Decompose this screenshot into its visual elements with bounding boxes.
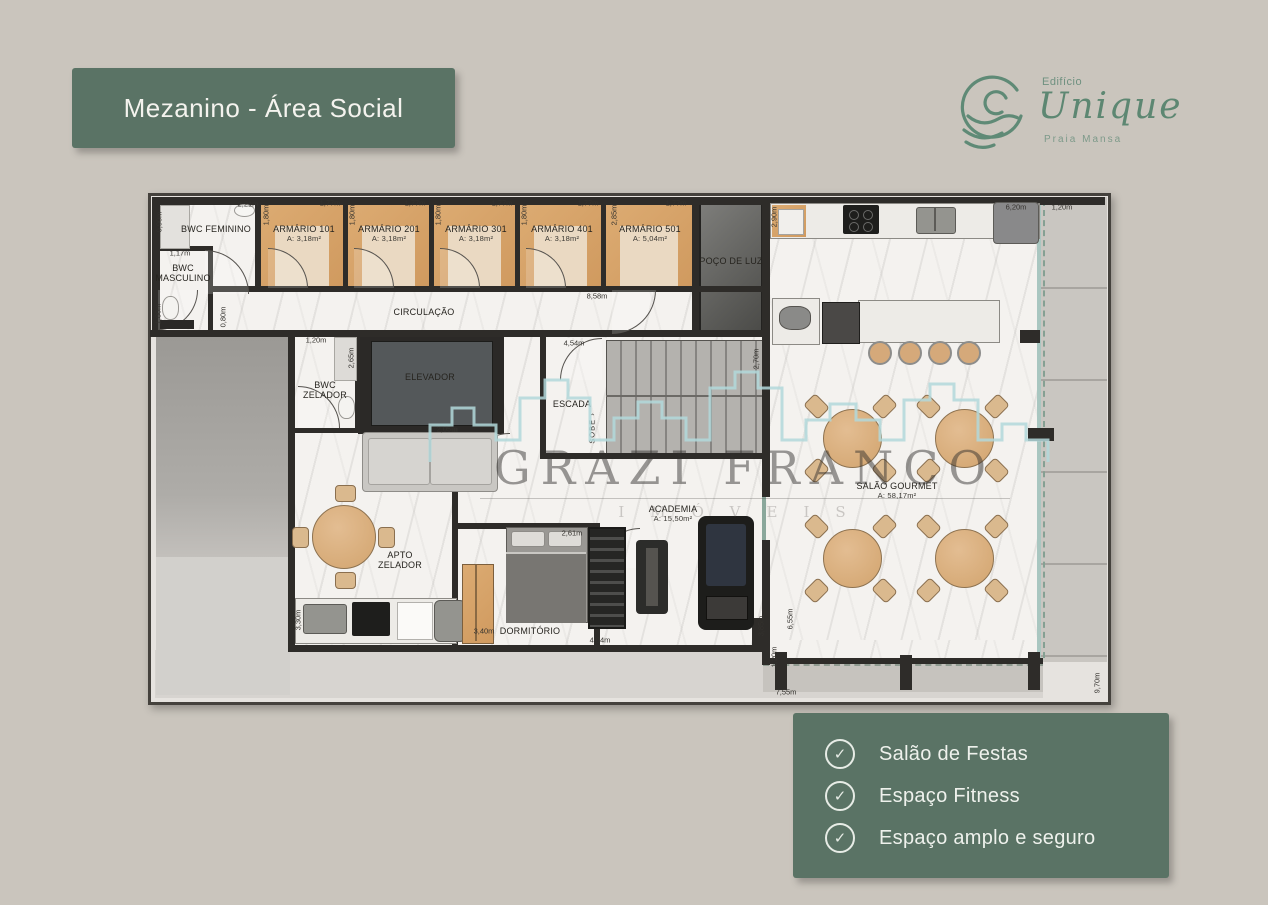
bar-stool	[898, 341, 922, 365]
wall-glass-segment	[762, 497, 766, 540]
feature-item: ✓ Salão de Festas	[793, 737, 1169, 771]
dimension-label: 1,17m	[170, 249, 191, 258]
dimension-label: 1,80m	[154, 304, 163, 325]
dimension-label: 1,77m	[666, 199, 687, 208]
room-label: APTO ZELADOR	[367, 550, 433, 570]
sink-divider	[934, 208, 936, 231]
dark-cabinet	[822, 302, 860, 344]
bar-stool	[868, 341, 892, 365]
gourmet-table	[823, 529, 882, 588]
wall	[540, 333, 546, 459]
sobe-text: SOBE	[588, 419, 597, 444]
dimension-label: 1,80m	[520, 205, 529, 226]
dimension-label: 2,70m	[752, 349, 761, 370]
stairs-sobe-label: SOBE ›	[588, 412, 597, 443]
wall	[288, 330, 295, 652]
dimension-label: 1,77m	[405, 199, 426, 208]
dimension-label: 8,58m	[587, 292, 608, 301]
dimension-label: 1,80m	[262, 205, 271, 226]
dimension-label: 7,55m	[776, 688, 797, 697]
bed-blanket	[506, 552, 586, 623]
room-label: BWC MASCULINO	[154, 263, 212, 283]
dimension-label: 2,65m	[347, 348, 356, 369]
toilet-masculino	[162, 296, 179, 320]
feature-item: ✓ Espaço amplo e seguro	[793, 821, 1169, 855]
wall	[288, 645, 765, 652]
room-label: ARMÁRIO 401A: 3,18m²	[531, 224, 593, 244]
room-label: POÇO DE LUZ	[699, 256, 762, 266]
gym-weight-rack	[588, 527, 626, 629]
room-label: DORMITÓRIO	[500, 626, 561, 636]
feature-label: Espaço Fitness	[879, 785, 1020, 808]
page: { "page": {"background": "#cac5bd", "acc…	[0, 0, 1268, 905]
bar-stool	[928, 341, 952, 365]
dimension-label: 2,85m	[610, 205, 619, 226]
chair	[335, 572, 356, 589]
room-label: SALÃO GOURMETA: 58,17m²	[856, 481, 937, 501]
room-label: ARMÁRIO 501A: 5,04m²	[619, 224, 681, 244]
wall	[150, 330, 295, 337]
dimension-label: 3,30m	[294, 610, 303, 631]
dimension-label: 1,80m	[434, 205, 443, 226]
wall-stub	[1020, 330, 1040, 343]
dimension-label: 0,90m	[155, 212, 164, 233]
stairs	[606, 340, 765, 455]
dimension-label: 0,80m	[219, 307, 228, 328]
room-label: ESCADA	[553, 399, 591, 409]
wall-stub	[900, 655, 912, 690]
dimension-label: 1,20m	[306, 336, 327, 345]
kitchen-double-sink	[916, 207, 956, 234]
burner	[849, 210, 859, 220]
bar-stool	[957, 341, 981, 365]
elevator-cab	[371, 341, 493, 426]
bench-masculino	[160, 320, 194, 329]
room-label: ARMÁRIO 201A: 3,18m²	[358, 224, 420, 244]
room-label: ELEVADOR	[405, 372, 455, 382]
sofa-cushion	[368, 438, 430, 485]
dimension-label: 1,80m	[348, 205, 357, 226]
wall	[762, 197, 770, 497]
kitchenette-stove	[352, 602, 390, 636]
gym-machine-bench	[646, 548, 658, 606]
treadmill-console	[706, 596, 748, 620]
gourmet-table	[935, 529, 994, 588]
kitchen-appliance-white	[778, 209, 804, 235]
check-circle-icon: ✓	[825, 739, 855, 769]
check-circle-icon: ✓	[825, 823, 855, 853]
burner	[849, 222, 859, 232]
dimension-label: 4,54m	[564, 339, 585, 348]
washbasin	[779, 306, 811, 330]
room-label: BWC ZELADOR	[297, 380, 353, 400]
pillow	[511, 531, 545, 547]
kitchenette-sink	[303, 604, 347, 634]
void-lower-roof	[156, 337, 290, 562]
wall	[540, 453, 768, 459]
dimension-label: 2,61m	[562, 529, 583, 538]
wall	[601, 197, 606, 292]
feature-label: Salão de Festas	[879, 743, 1028, 766]
chair	[378, 527, 395, 548]
room-label: CIRCULAÇÃO	[393, 307, 454, 317]
wall	[293, 428, 360, 433]
room-label: ACADEMIAA: 15,50m²	[649, 504, 698, 524]
wall-stub	[1028, 652, 1040, 690]
wall-stub	[1028, 428, 1054, 441]
dimension-label: 6,20m	[1006, 203, 1027, 212]
room-label: BWC FEMININO	[181, 224, 251, 234]
features-box: ✓ Salão de Festas ✓ Espaço Fitness ✓ Esp…	[793, 713, 1169, 878]
burner	[863, 222, 873, 232]
dimension-label: 6,55m	[786, 609, 795, 630]
gourmet-table	[935, 409, 994, 468]
dimension-label: 2,21m	[238, 200, 259, 209]
wall	[255, 197, 261, 292]
void-lower-roof-light	[156, 557, 290, 695]
dimension-label: 2,90m	[770, 207, 779, 228]
kitchenette-counter-white	[397, 602, 433, 640]
chair	[292, 527, 309, 548]
feature-label: Espaço amplo e seguro	[879, 827, 1095, 850]
dimension-label: 2,05m	[437, 425, 458, 434]
check-circle-icon: ✓	[825, 781, 855, 811]
dimension-label: 1,77m	[578, 199, 599, 208]
gourmet-table	[823, 409, 882, 468]
cooktop	[843, 205, 879, 234]
dimension-label: 9,70m	[1093, 673, 1102, 694]
dimension-label: 1,77m	[492, 199, 513, 208]
dimension-label: 1,20m	[1052, 203, 1073, 212]
room-poco-de-luz	[699, 203, 763, 334]
feature-item: ✓ Espaço Fitness	[793, 779, 1169, 813]
dimension-label: 3,85m	[757, 616, 766, 637]
room-label: ARMÁRIO 101A: 3,18m²	[273, 224, 335, 244]
wall	[692, 197, 699, 337]
room-label: ARMÁRIO 301A: 3,18m²	[445, 224, 507, 244]
sofa-cushion	[430, 438, 492, 485]
treadmill-deck	[706, 524, 746, 586]
stairs-mid-line	[606, 395, 763, 397]
burner	[863, 210, 873, 220]
chair	[335, 485, 356, 502]
dimension-label: 3,40m	[474, 627, 495, 636]
dimension-label: 1,77m	[320, 199, 341, 208]
dimension-label: 1,20m	[770, 647, 779, 668]
island-counter	[858, 300, 1000, 343]
dimension-label: 4,04m	[590, 636, 611, 645]
